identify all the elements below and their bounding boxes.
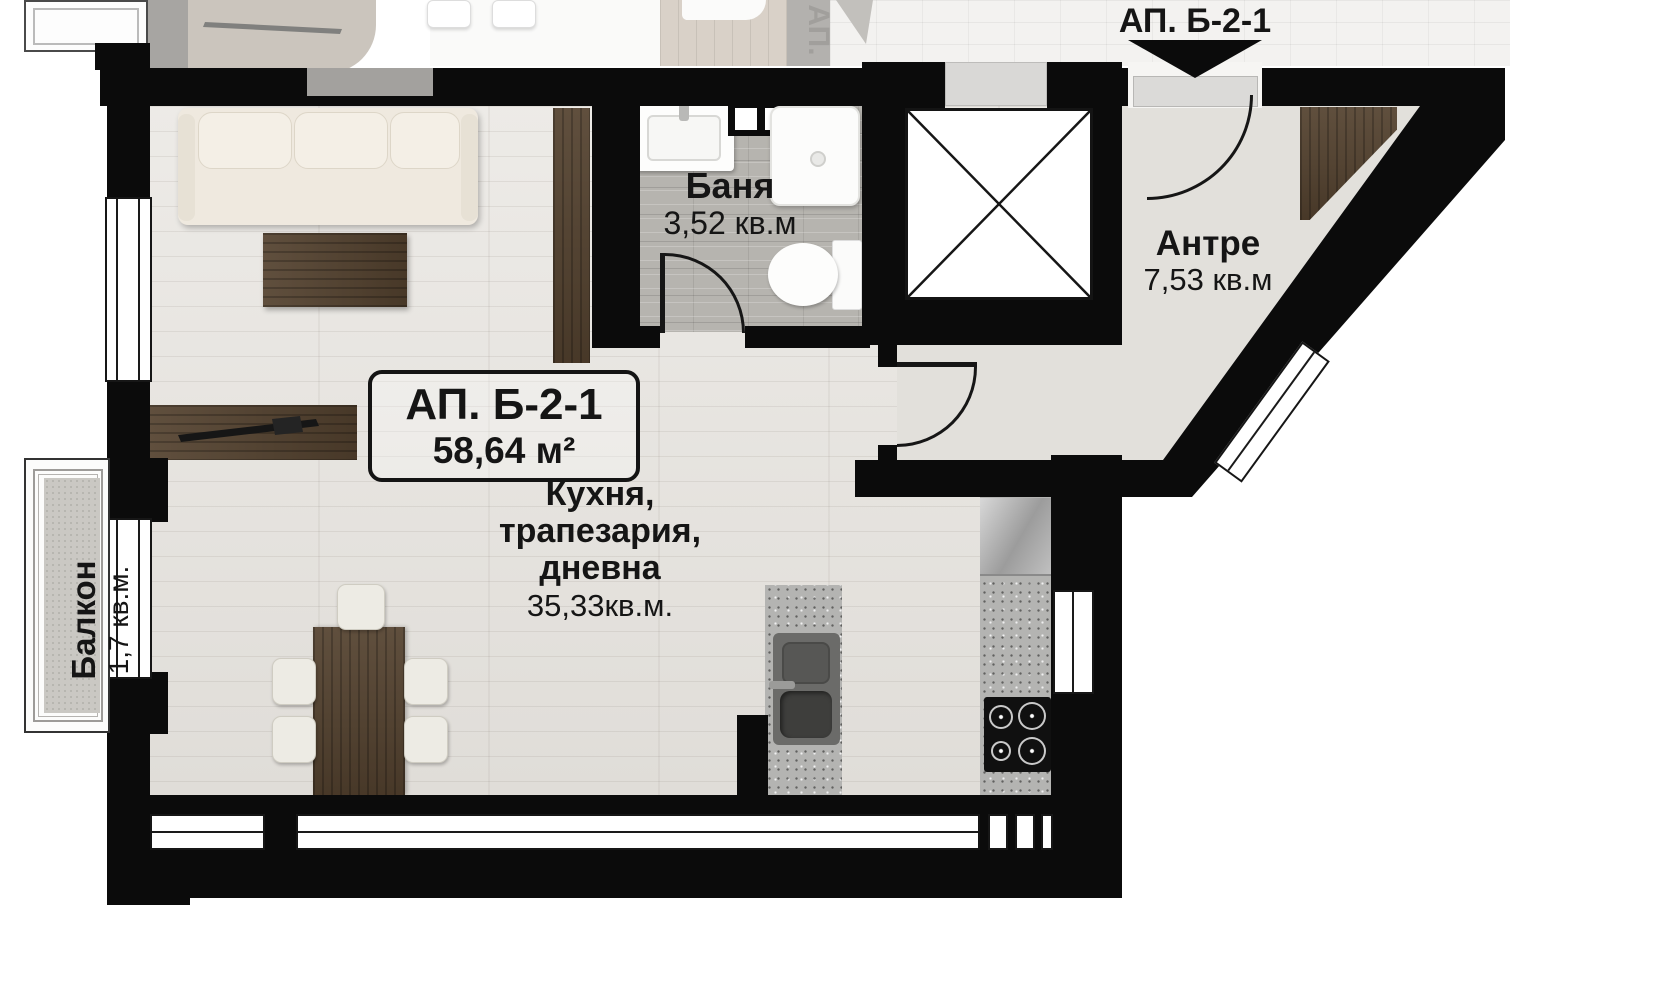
living-area: 35,33кв.м. [455,589,745,624]
left-wall [107,380,150,520]
kitchen-faucet [769,681,795,689]
unit-card: АП. Б-2-1 58,64 м² [368,370,640,482]
bathroom-sink [635,103,734,171]
sofa-armrest [178,114,195,221]
window-frame-line [298,831,978,833]
entry-unit-label: АП. Б-2-1 [1085,2,1305,40]
burner-icon [989,705,1013,729]
window [988,814,1008,850]
vent-opening [735,108,757,130]
hall-wardrobe [1300,107,1397,220]
neighbor-entry-arrow-icon [836,0,873,44]
dining-chair [272,658,316,705]
neighbor-wood-floor [660,0,787,66]
hall-diagonal-window [1214,341,1330,482]
unit-card-name: АП. Б-2-1 [372,380,636,430]
living-name-line: дневна [455,550,745,587]
burner-icon [991,741,1011,761]
hall-name: Антре [1083,224,1333,263]
elevator-shaft [905,108,1093,300]
window [296,814,980,850]
shaft-top-wall [1047,62,1122,108]
hall-area: 7,53 кв.м [1083,263,1333,298]
shaft-bottom-wall [862,300,1122,345]
balcony-name: Балкон [66,510,103,730]
dining-chair [404,716,448,763]
window-frame-line [116,199,118,380]
window-frame-line [1227,352,1314,471]
sofa [178,108,478,225]
window-frame-line [138,520,140,677]
coffee-table [263,233,407,307]
hall-label: Антре 7,53 кв.м [1083,224,1333,298]
neighbor-chair [427,0,471,28]
hall-partition-wall [878,445,897,460]
fridge [980,498,1051,576]
sofa-pillow [390,112,460,169]
living-label: Кухня, трапезария, дневна 35,33кв.м. [455,476,745,624]
tv-stand [148,405,357,460]
bathroom-name: Баня [605,166,855,206]
balcony-area: 1,7 кв.м. [103,510,134,730]
kitchen-sink-basin-small [782,642,830,684]
sofa-pillow [294,112,388,169]
living-name-line: Кухня, [455,476,745,513]
cooktop [984,697,1051,772]
entry-arrow-icon [1128,40,1262,78]
shaft-top-wall [862,62,945,108]
bathroom-area: 3,52 кв.м [605,206,855,242]
hall-bottom-wall [855,460,1190,497]
sofa-armrest [461,114,478,221]
hall-partition-wall [878,345,897,367]
neighbor-balcony-railing [33,8,139,45]
window [105,197,152,382]
neighbor-wall-segment [307,68,433,96]
dining-chair [337,584,385,630]
neighbor-furniture [682,0,766,20]
dining-chair [272,716,316,763]
left-wall [107,100,150,200]
bathroom-label: Баня 3,52 кв.м [605,166,855,242]
living-name-line: трапезария, [455,513,745,550]
sofa-pillow [198,112,292,169]
neighbor-chair [492,0,536,28]
neighbor-desk [188,0,376,73]
bathroom-bottom-wall [592,326,660,348]
bathroom-sink-basin [647,115,721,161]
kitchen-sink [773,633,840,745]
balcony-label: Балкон 1,7 кв.м. [66,510,136,730]
dining-chair [404,658,448,705]
window [150,814,265,850]
window [1041,814,1053,850]
balcony-anchor-wall [148,458,168,522]
shower-drain-icon [810,151,826,167]
burner-icon [1018,702,1046,730]
floor-plan: АП. [0,0,1654,985]
window-frame-line [152,831,263,833]
burner-icon [1018,737,1046,765]
window-frame-line [1072,592,1074,692]
corner-wall-block [95,43,150,70]
toilet-bowl [768,243,838,306]
balcony-anchor-wall [148,672,168,734]
window [1015,814,1035,850]
kitchen-sink-basin-main [780,691,832,738]
entrance-door-arc [1147,95,1253,200]
dining-table [313,627,405,795]
island-wall-stub [737,715,768,797]
unit-card-area: 58,64 м² [372,430,636,472]
window [1053,590,1094,694]
window-frame-line [138,199,140,380]
bathroom-bottom-wall [745,326,870,348]
elevator-door [945,62,1047,106]
wardrobe [553,108,590,363]
